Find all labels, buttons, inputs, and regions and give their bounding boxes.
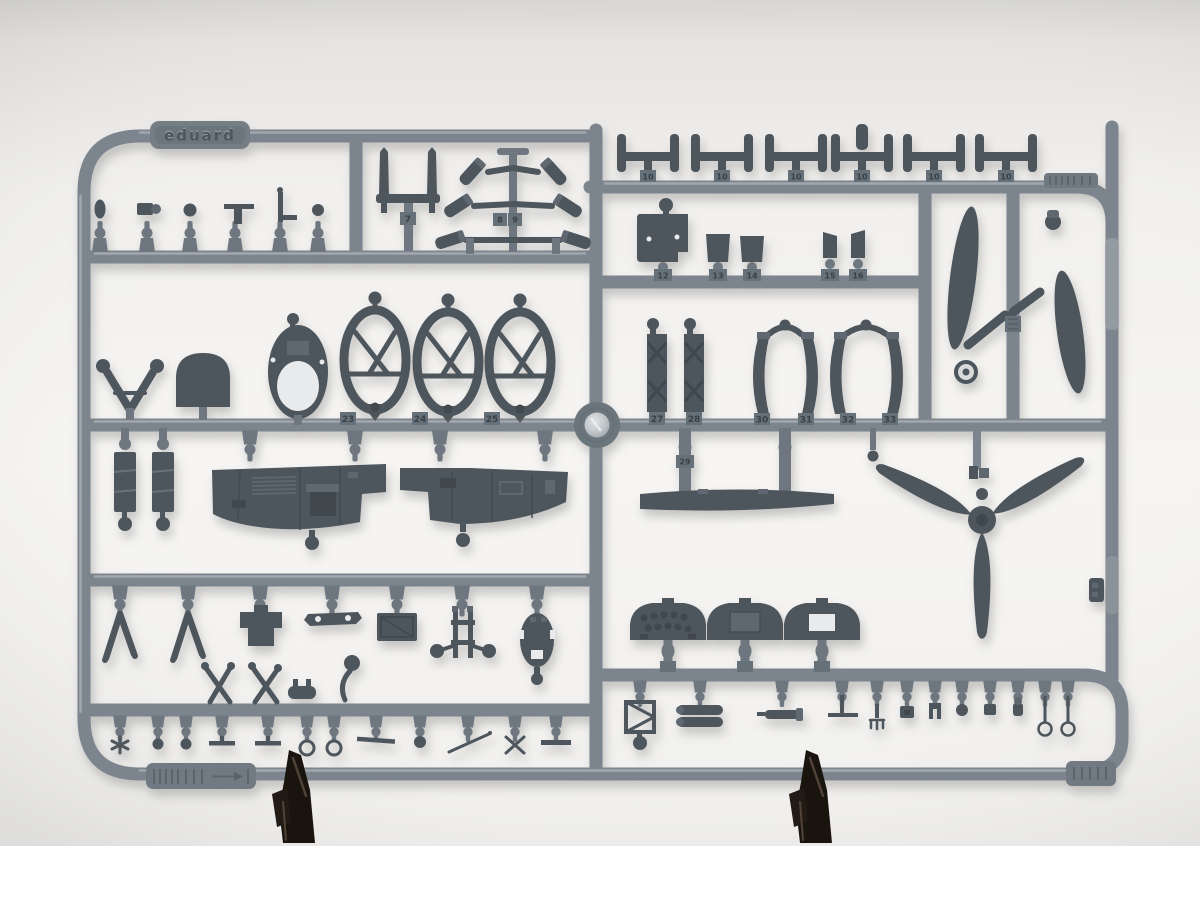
part-number-24: 24 (414, 415, 427, 425)
part-number-10: 10 (790, 173, 802, 182)
part-number-30: 30 (756, 416, 769, 426)
part-number-10: 10 (716, 173, 728, 182)
part-number-25: 25 (486, 415, 499, 425)
part-number-14: 14 (746, 272, 758, 281)
sprue-photo-svg: eduard eduard (0, 0, 1200, 900)
brand-text: eduard (164, 126, 236, 144)
part-number-10: 10 (928, 173, 940, 182)
part-number-23: 23 (342, 415, 355, 425)
center-locating-boss (574, 402, 620, 448)
part-number-33: 33 (884, 416, 897, 426)
brand-plate-eduard: eduard eduard (150, 121, 250, 149)
photo-bottom-edge (0, 846, 1200, 900)
part-number-13: 13 (712, 272, 723, 281)
part-number-29: 29 (679, 458, 691, 467)
mold-info-plate-bottom-left (146, 763, 256, 789)
part-number-16: 16 (852, 272, 864, 281)
part-number-31: 31 (800, 416, 813, 426)
part-number-28: 28 (688, 415, 701, 425)
part-number-12: 12 (657, 272, 668, 281)
clip-part-right-rail (1089, 578, 1104, 602)
part-number-8: 8 (497, 216, 503, 225)
mold-info-plate-top-right (1044, 173, 1098, 188)
mold-info-plate-bottom-right (1066, 761, 1116, 786)
part-number-7: 7 (405, 215, 411, 225)
part-number-10: 10 (1000, 173, 1012, 182)
part-number-15: 15 (824, 272, 836, 281)
photo-model-kit-sprue: eduard eduard (0, 0, 1200, 900)
part-number-27: 27 (651, 415, 664, 425)
part-number-10: 10 (856, 173, 868, 182)
part-number-10: 10 (642, 173, 654, 182)
instrument-panel-parts (630, 598, 860, 672)
part-number-32: 32 (842, 416, 855, 426)
part-number-9: 9 (512, 216, 518, 225)
